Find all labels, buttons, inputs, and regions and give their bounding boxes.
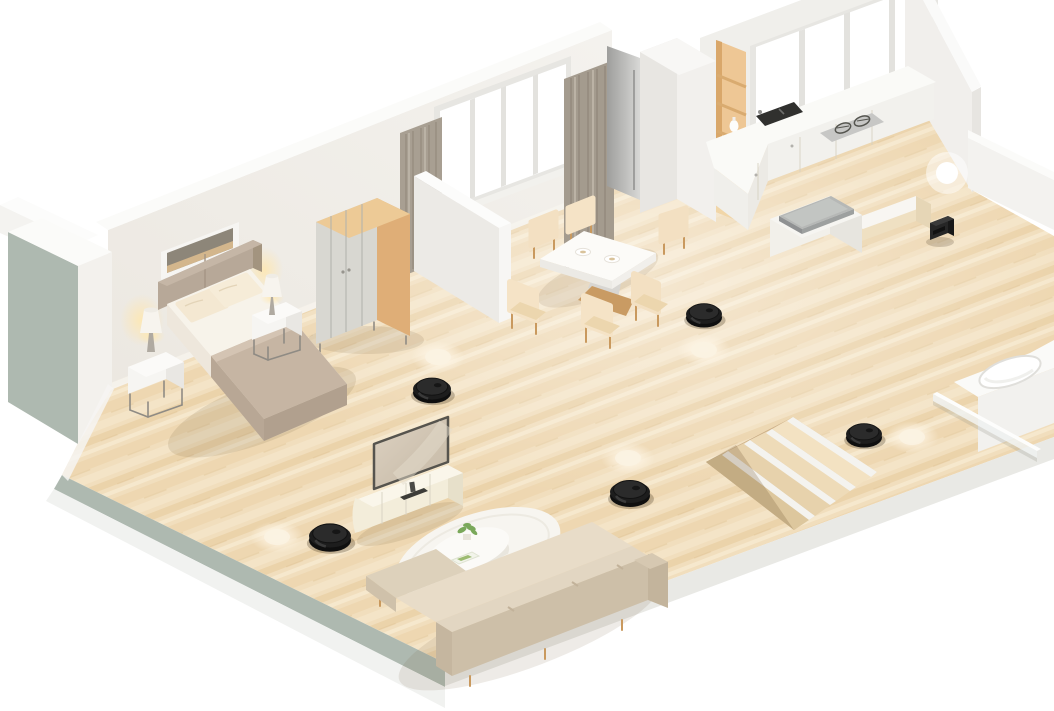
fridge — [607, 46, 640, 200]
wardrobe — [308, 198, 424, 354]
location-marker[interactable] — [926, 152, 968, 194]
floorplan-scene — [0, 0, 1054, 711]
location-marker[interactable] — [885, 421, 939, 453]
location-marker[interactable] — [677, 334, 731, 366]
column-wall — [640, 38, 716, 222]
location-marker[interactable] — [601, 442, 655, 474]
location-marker[interactable] — [250, 521, 304, 553]
exterior-wall-face — [8, 232, 78, 444]
floorplan-stage — [0, 0, 1054, 711]
location-marker[interactable] — [411, 341, 465, 373]
